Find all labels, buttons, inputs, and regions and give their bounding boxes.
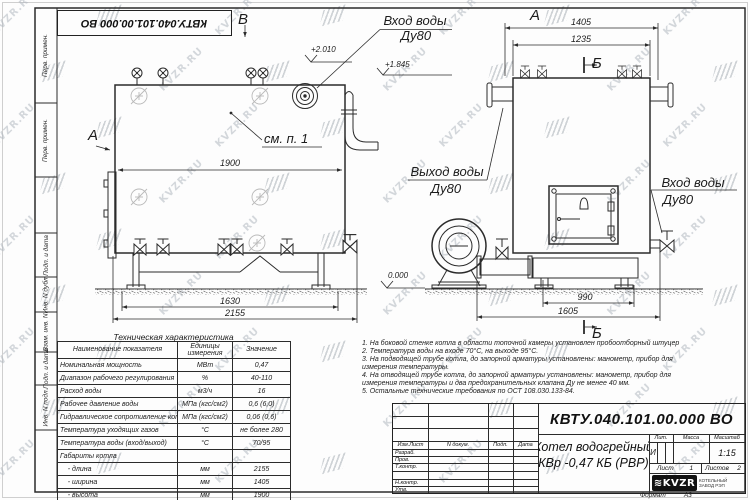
cell-units: МВт <box>178 359 233 372</box>
cell-value: 2155 <box>233 463 291 476</box>
cell-units: МПа (кгс/см2) <box>178 398 233 411</box>
margin-cell-inv-dubl: Инв. N дубл. <box>35 277 57 312</box>
row-utv: Утв. <box>393 486 430 493</box>
cell-value: 16 <box>233 385 291 398</box>
row-razrab: Разраб. <box>393 449 430 456</box>
ground-side <box>425 289 703 295</box>
margin-label: Взам. инв. N <box>43 313 50 351</box>
cell-value: 0,47 <box>233 359 291 372</box>
margin-cell-perv-primen-1: Перв. примен. <box>35 8 57 103</box>
cell-value: 70/95 <box>233 437 291 450</box>
cell-name: Расход воды <box>58 385 178 398</box>
margin-label: Перв. примен. <box>43 118 50 161</box>
inlet-valve <box>650 231 674 252</box>
dim-side-total: 1605 <box>558 306 579 316</box>
margin-cell-inv-podl: Инв. N подл. <box>35 385 57 430</box>
cell-value: не более 280 <box>233 424 291 437</box>
product-name: Котел водогрейный КВр -0,47 КБ (РВР) <box>538 434 649 498</box>
cell-value: 0,06 (0,6) <box>233 411 291 424</box>
product-name-line2: КВр -0,47 КБ (РВР) <box>538 455 648 471</box>
cell-name: Температура воды (вход/выход) <box>58 437 178 450</box>
col-header: Единицы измерения <box>178 342 233 359</box>
outlet-dn: Ду80 <box>429 181 462 196</box>
title-block: Изм.Лист N докум. Подп. Дата Разраб. Про… <box>392 403 746 494</box>
table-row: Габариты котла <box>58 450 291 463</box>
cell-units: мм <box>178 476 233 489</box>
elevation-1845: +1.845 <box>385 60 410 69</box>
see-item-note: см. п. 1 <box>264 131 308 146</box>
base-frame <box>127 253 330 289</box>
cell-value <box>233 450 291 463</box>
col-izm-list: Изм.Лист <box>393 441 428 449</box>
sheet-cell: Лист 1 <box>649 463 701 473</box>
base-side <box>533 258 638 288</box>
cell-name: Габариты котла <box>58 450 178 463</box>
margin-cell-perv-primen-2: Перв. примен. <box>35 103 57 177</box>
col-podp: Подп. <box>488 441 513 449</box>
inlet-right-label: Вход воды <box>661 175 725 190</box>
dim-front-width: 1900 <box>220 158 240 168</box>
format-label: Формат <box>640 492 666 499</box>
technical-notes: 1. На боковой стенке котла в области топ… <box>362 340 707 396</box>
product-name-line1: Котел водогрейный <box>538 439 649 455</box>
margin-cell-vzam-inv: Взам. инв. N <box>35 312 57 352</box>
cell-name: Рабочее давление воды <box>58 398 178 411</box>
note-4: 4. На отводящей трубе котла, до запорной… <box>362 372 707 388</box>
col-header: Значение <box>233 342 291 359</box>
tech-table-title: Техническая характеристика <box>57 332 290 341</box>
table-row: Расход водым3/ч16 <box>58 385 291 398</box>
dim-side-top: 1405 <box>571 17 592 27</box>
outlet-pipe <box>341 92 378 201</box>
margin-cell-podp-data-2: Подп. и дата <box>35 352 57 385</box>
cell-name: - длина <box>58 463 178 476</box>
furnace-door <box>549 186 618 244</box>
ground-front <box>95 289 367 295</box>
note-5: 5. Остальные технические требования по О… <box>362 388 707 396</box>
view-label-a-right: А <box>529 7 540 24</box>
row-blank <box>393 471 430 479</box>
top-flange <box>293 84 318 109</box>
cell-name: Гидравлическое сопротивление котла <box>58 411 178 424</box>
top-stamp-number: КВТУ.040.101.00.000 ВО <box>81 17 207 29</box>
cell-value: 40-110 <box>233 372 291 385</box>
bottom-valves <box>134 235 357 255</box>
sheet-label: Лист <box>657 465 674 472</box>
cell-name: Температура уходящих газов <box>58 424 178 437</box>
cell-name: Диапазон рабочего регулирования <box>58 372 178 385</box>
kvzr-logo: ≋KVZR <box>652 475 697 491</box>
left-flange <box>487 83 513 107</box>
sheets-label: Листов <box>705 465 729 472</box>
inlet-top-label: Вход воды <box>383 13 447 28</box>
cell-units: мм <box>178 463 233 476</box>
tech-characteristics: Техническая характеристика Наименование … <box>57 332 290 500</box>
format-note: ФорматА3 <box>640 492 750 499</box>
margin-cell-podp-data-1: Подп. и дата <box>35 233 57 277</box>
drawing-sheet: KVZR.RUKVZR.RUKVZR.RUKVZR.RUKVZR.RUKVZR.… <box>0 0 750 500</box>
scale-value: 1:15 <box>709 442 745 463</box>
front-view <box>95 68 378 295</box>
cell-name: Номинальная мощность <box>58 359 178 372</box>
top-stamp: КВТУ.040.101.00.000 ВО <box>57 10 232 36</box>
side-door-strip <box>104 172 116 258</box>
sheet-value: 1 <box>689 465 693 472</box>
cell-units: МПа (кгс/см2) <box>178 411 233 424</box>
table-row: - высотамм1900 <box>58 489 291 500</box>
table-row: Гидравлическое сопротивление котлаМПа (к… <box>58 411 291 424</box>
dim-front-base: 1630 <box>220 296 240 306</box>
right-flange <box>650 83 673 107</box>
document-number: КВТУ.040.101.00.000 ВО <box>538 404 745 434</box>
table-row: Рабочее давление водыМПа (кгс/см2)0,6 (6… <box>58 398 291 411</box>
cell-name: - высота <box>58 489 178 500</box>
cell-units: °С <box>178 424 233 437</box>
cell-units: м3/ч <box>178 385 233 398</box>
col-n-dokum: N докум. <box>428 441 488 449</box>
inlet-top-dn: Ду80 <box>399 28 432 43</box>
margin-label: Инв. N подл. <box>43 389 50 427</box>
elevation-zero: 0.000 <box>388 271 409 280</box>
cell-value: 1405 <box>233 476 291 489</box>
cell-value: 0,6 (6,0) <box>233 398 291 411</box>
dim-front-total: 2155 <box>224 308 246 318</box>
cell-units: °С <box>178 437 233 450</box>
margin-label: Перв. примен. <box>43 34 50 77</box>
row-nkontr: Н.контр. <box>393 479 430 486</box>
section-label-b-top: Б <box>592 55 602 72</box>
table-row: Температура уходящих газов°Сне более 280 <box>58 424 291 437</box>
col-data: Дата <box>513 441 538 449</box>
row-tkontr: Т.контр. <box>393 463 430 471</box>
table-row: Номинальная мощностьМВт0,47 <box>58 359 291 372</box>
view-label-a-left: А <box>87 127 98 144</box>
elevation-2010: +2.010 <box>311 45 336 54</box>
table-row: Диапазон рабочего регулирования%40-110 <box>58 372 291 385</box>
dim-side-inner: 1235 <box>571 34 592 44</box>
margin-label: Подп. и дата <box>43 348 50 389</box>
margin-label: Инв. N дубл. <box>43 276 50 314</box>
cell-units: мм <box>178 489 233 500</box>
note-1: 1. На боковой стенке котла в области топ… <box>362 340 707 348</box>
table-row: - ширинамм1405 <box>58 476 291 489</box>
lit-header: Лит. <box>649 434 673 442</box>
sheets-value: 2 <box>737 465 741 472</box>
sheets-cell: Листов 2 <box>701 463 745 473</box>
col-header: Наименование показателя <box>58 342 178 359</box>
outlet-label: Выход воды <box>410 164 484 179</box>
note-3: 3. На подводящей трубе котла, до запорно… <box>362 356 707 372</box>
view-label-b: В <box>238 11 248 28</box>
lit-value: И <box>649 442 657 463</box>
company-line2: ЗАВОД РЭП <box>699 483 725 488</box>
cell-name: - ширина <box>58 476 178 489</box>
format-value: А3 <box>684 492 692 499</box>
margin-label: Подп. и дата <box>43 235 50 276</box>
inlet-right-dn: Ду80 <box>661 192 694 207</box>
dim-side-base: 990 <box>577 292 592 302</box>
row-prov: Пров. <box>393 456 430 463</box>
company-name: КОТЕЛЬНЫЙ ЗАВОД РЭП <box>699 475 745 491</box>
note-2: 2. Температура воды на входе 70°С, на вы… <box>362 348 707 356</box>
cell-value: 1900 <box>233 489 291 500</box>
table-row: Температура воды (вход/выход)°С70/95 <box>58 437 291 450</box>
cell-units <box>178 450 233 463</box>
mass-header: Масса <box>673 434 709 442</box>
scale-header: Масштаб <box>709 434 745 442</box>
cell-units: % <box>178 372 233 385</box>
table-row: - длинамм2155 <box>58 463 291 476</box>
tech-table: Наименование показателя Единицы измерени… <box>57 341 291 500</box>
tech-table-header: Наименование показателя Единицы измерени… <box>58 342 291 359</box>
